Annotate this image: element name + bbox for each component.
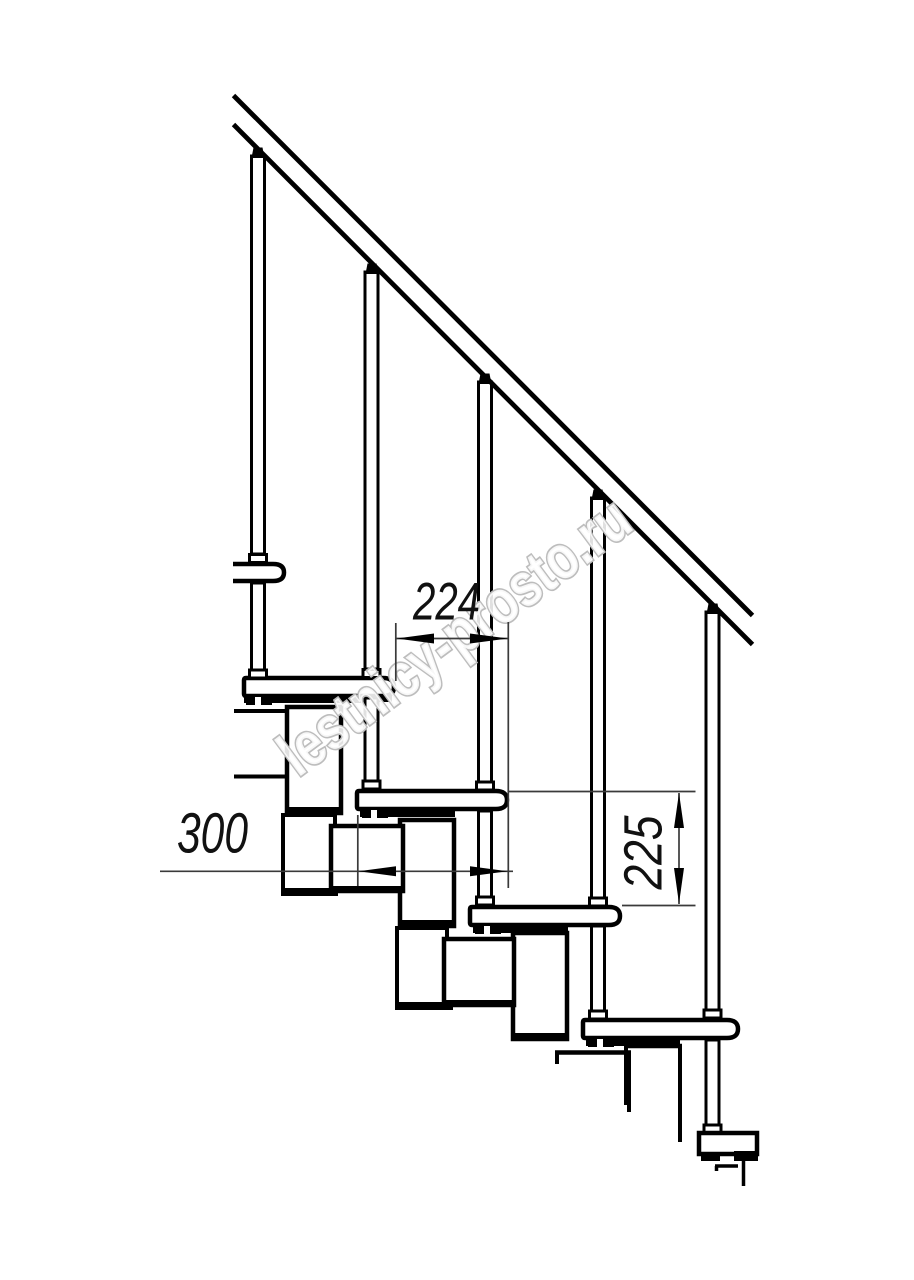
svg-text:300: 300: [177, 802, 248, 866]
svg-text:224: 224: [412, 573, 480, 632]
svg-text:225: 225: [614, 815, 674, 891]
